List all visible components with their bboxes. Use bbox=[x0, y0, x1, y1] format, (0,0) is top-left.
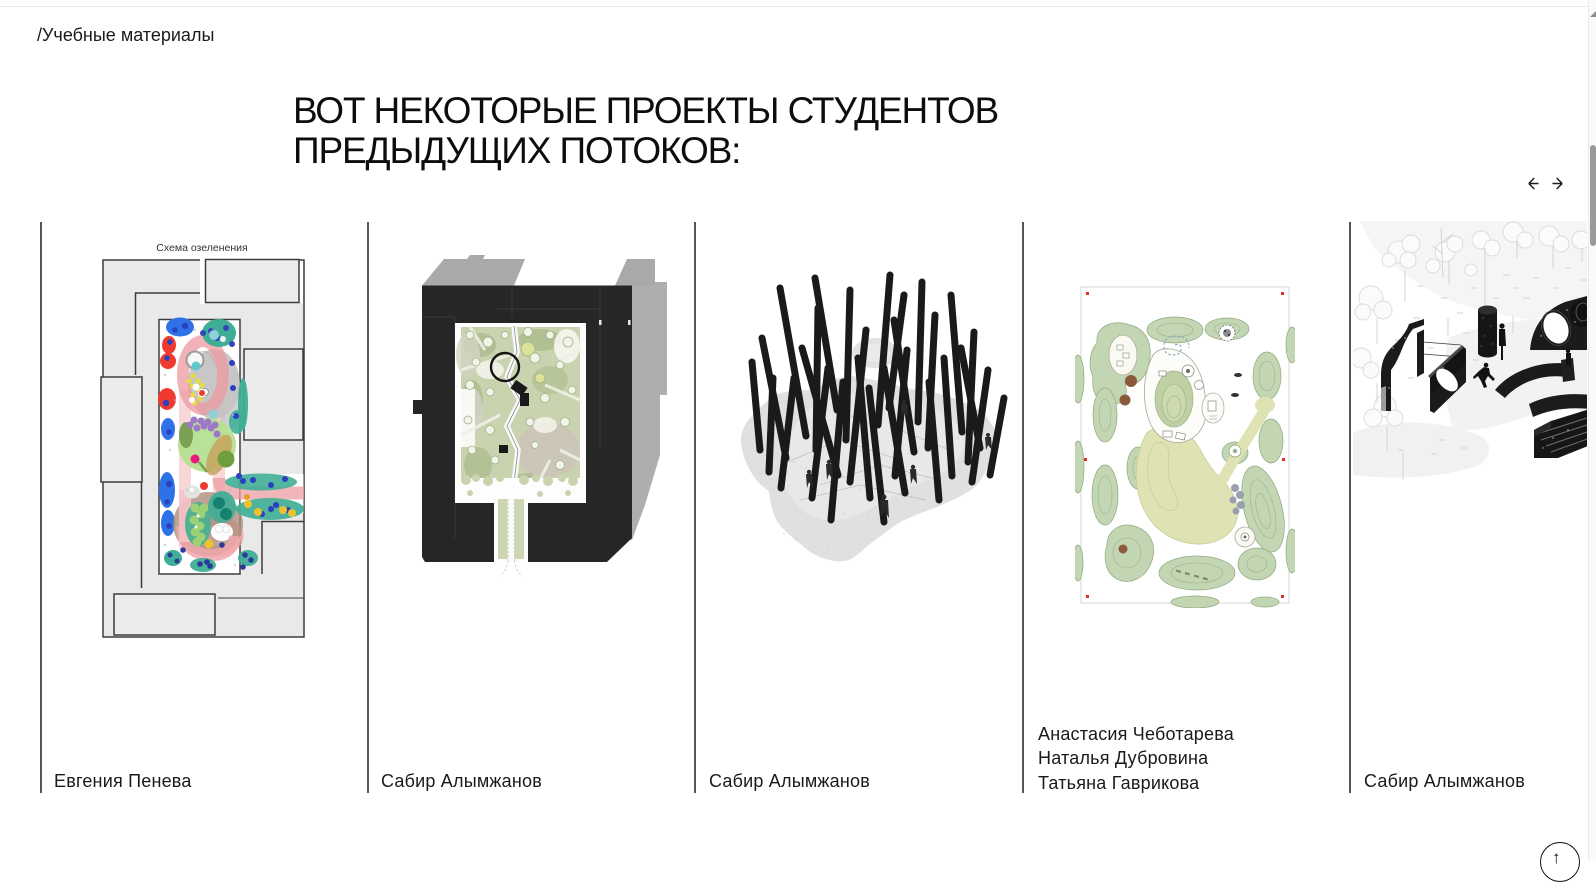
svg-text:Схема озеленения: Схема озеленения bbox=[156, 242, 247, 254]
